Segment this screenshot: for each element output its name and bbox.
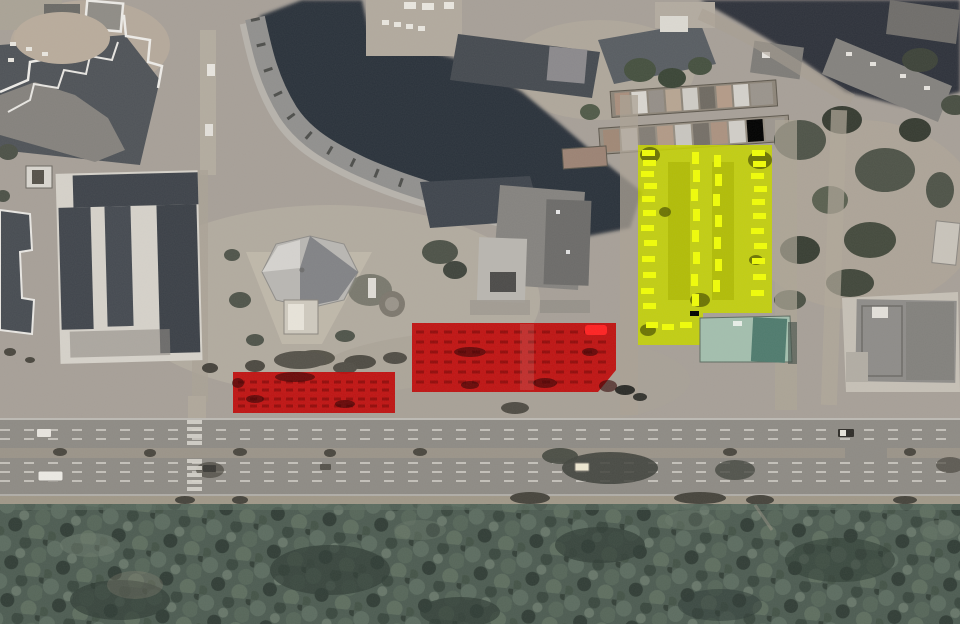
image-grain — [0, 0, 960, 624]
satellite-map-view — [0, 0, 960, 624]
satellite-map — [0, 0, 960, 624]
